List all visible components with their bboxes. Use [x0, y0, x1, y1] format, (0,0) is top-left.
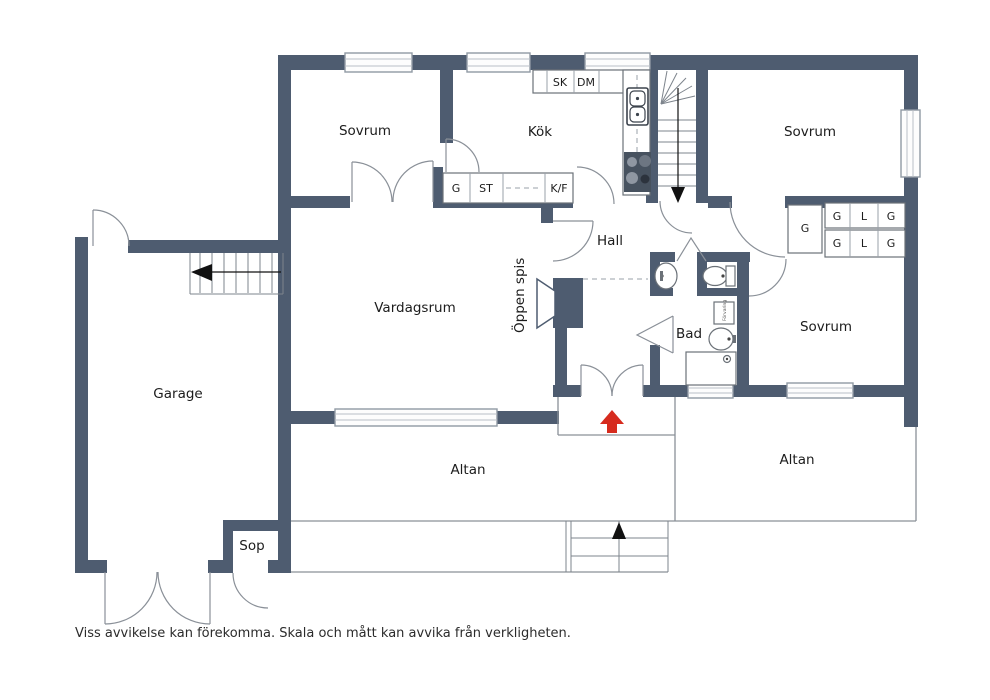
bedroom2-door [730, 202, 785, 257]
terrace-steps [566, 521, 668, 572]
unit-label-dishwasher: DM [577, 76, 595, 89]
room-label-bedroom2: Sovrum [784, 124, 836, 140]
room-label-garage: Garage [153, 386, 202, 402]
wall-segment [208, 560, 223, 573]
wall-segment [223, 520, 290, 531]
wall-segment [75, 560, 107, 573]
wall-segment [696, 70, 708, 203]
wall-segment [440, 70, 453, 143]
wall-segment [128, 240, 278, 253]
bathroom-fixtures: Förvaring [655, 263, 736, 385]
stairs-down-arrow [671, 187, 685, 203]
room-label-terrace-left: Altan [450, 462, 485, 478]
room-label-kitchen: Kök [528, 124, 552, 140]
wall-segment [853, 385, 918, 397]
wall-segment [541, 208, 553, 223]
doors [93, 139, 786, 624]
sink-icon [709, 328, 736, 350]
entrance-double-door [581, 365, 643, 396]
closet-label-r2c2: L [861, 237, 868, 250]
wall-segment [650, 288, 673, 296]
closet-label-hall-g: G [801, 222, 810, 235]
unit-label-pantry: SK [553, 76, 568, 89]
labels: Sovrum Kök Sovrum Hall Vardagsrum Öppen … [153, 76, 895, 554]
stairs-direction-arrow [191, 264, 212, 281]
closet-label-r2c1: G [833, 237, 842, 250]
waste-room-door [233, 573, 268, 608]
window [688, 384, 733, 398]
kitchen-sink-icon [627, 88, 648, 125]
closet-label-r1c2: L [861, 210, 868, 223]
wall-segment [643, 385, 688, 397]
wall-segment [278, 196, 350, 208]
garage-stairs [190, 253, 283, 294]
room-label-terrace-right: Altan [779, 452, 814, 468]
wall-segment [708, 196, 732, 208]
window [335, 409, 497, 426]
room-label-waste: Sop [239, 538, 264, 554]
main-staircase [658, 71, 696, 203]
kitchen-hall-door [577, 167, 614, 204]
wall-segment [555, 328, 567, 388]
disclaimer-text: Viss avvikelse kan förekomma. Skala och … [75, 626, 571, 641]
stair-door [660, 201, 692, 233]
garage-double-door [105, 572, 210, 624]
entrance-arrow [600, 410, 624, 433]
wall-segment [75, 237, 88, 573]
toilet-icon [703, 266, 735, 286]
floorplan-drawing: Förvaring Sovrum Kök Sovrum Hall Vardags… [0, 0, 990, 700]
stove-icon [624, 152, 651, 192]
wall-segment [223, 531, 233, 573]
wall-segment [553, 385, 581, 397]
window [585, 53, 650, 72]
wall-segment [278, 70, 291, 573]
bedroom3-door [749, 259, 786, 296]
window [787, 383, 853, 398]
storage-cabinet-label: Förvaring [722, 300, 728, 321]
room-label-bedroom3: Sovrum [800, 319, 852, 335]
closet-label-r2c3: G [887, 237, 896, 250]
storage-cabinet: Förvaring [714, 300, 734, 324]
room-label-fireplace: Öppen spis [510, 258, 528, 333]
floorplan-page: Förvaring Sovrum Kök Sovrum Hall Vardags… [0, 0, 990, 700]
window [901, 110, 920, 177]
garage-entry-door [93, 210, 129, 246]
room-label-hall: Hall [597, 233, 623, 249]
wall-segment [433, 167, 443, 200]
wall-segment [650, 345, 660, 397]
wall-segment [497, 411, 559, 424]
unit-label-wardrobe: G [452, 182, 461, 195]
room-label-living: Vardagsrum [374, 300, 455, 316]
fireplace [537, 278, 583, 328]
steps-up-arrow [612, 522, 626, 539]
unit-label-cleaning: ST [479, 182, 493, 195]
hall-livingroom-door [553, 221, 593, 261]
window [467, 53, 530, 72]
bedroom1-double-door [352, 161, 433, 202]
closet-label-r1c3: G [887, 210, 896, 223]
wall-segment [737, 252, 749, 397]
room-label-bedroom1: Sovrum [339, 123, 391, 139]
wall-segment [268, 560, 290, 573]
sink-icon [655, 263, 677, 289]
wall-segment [278, 411, 335, 424]
unit-label-fridge: K/F [550, 182, 567, 195]
window [345, 53, 412, 72]
room-label-bathroom: Bad [676, 326, 702, 342]
kitchen-door [446, 139, 479, 172]
closet-label-r1c1: G [833, 210, 842, 223]
shower-icon [686, 352, 736, 385]
